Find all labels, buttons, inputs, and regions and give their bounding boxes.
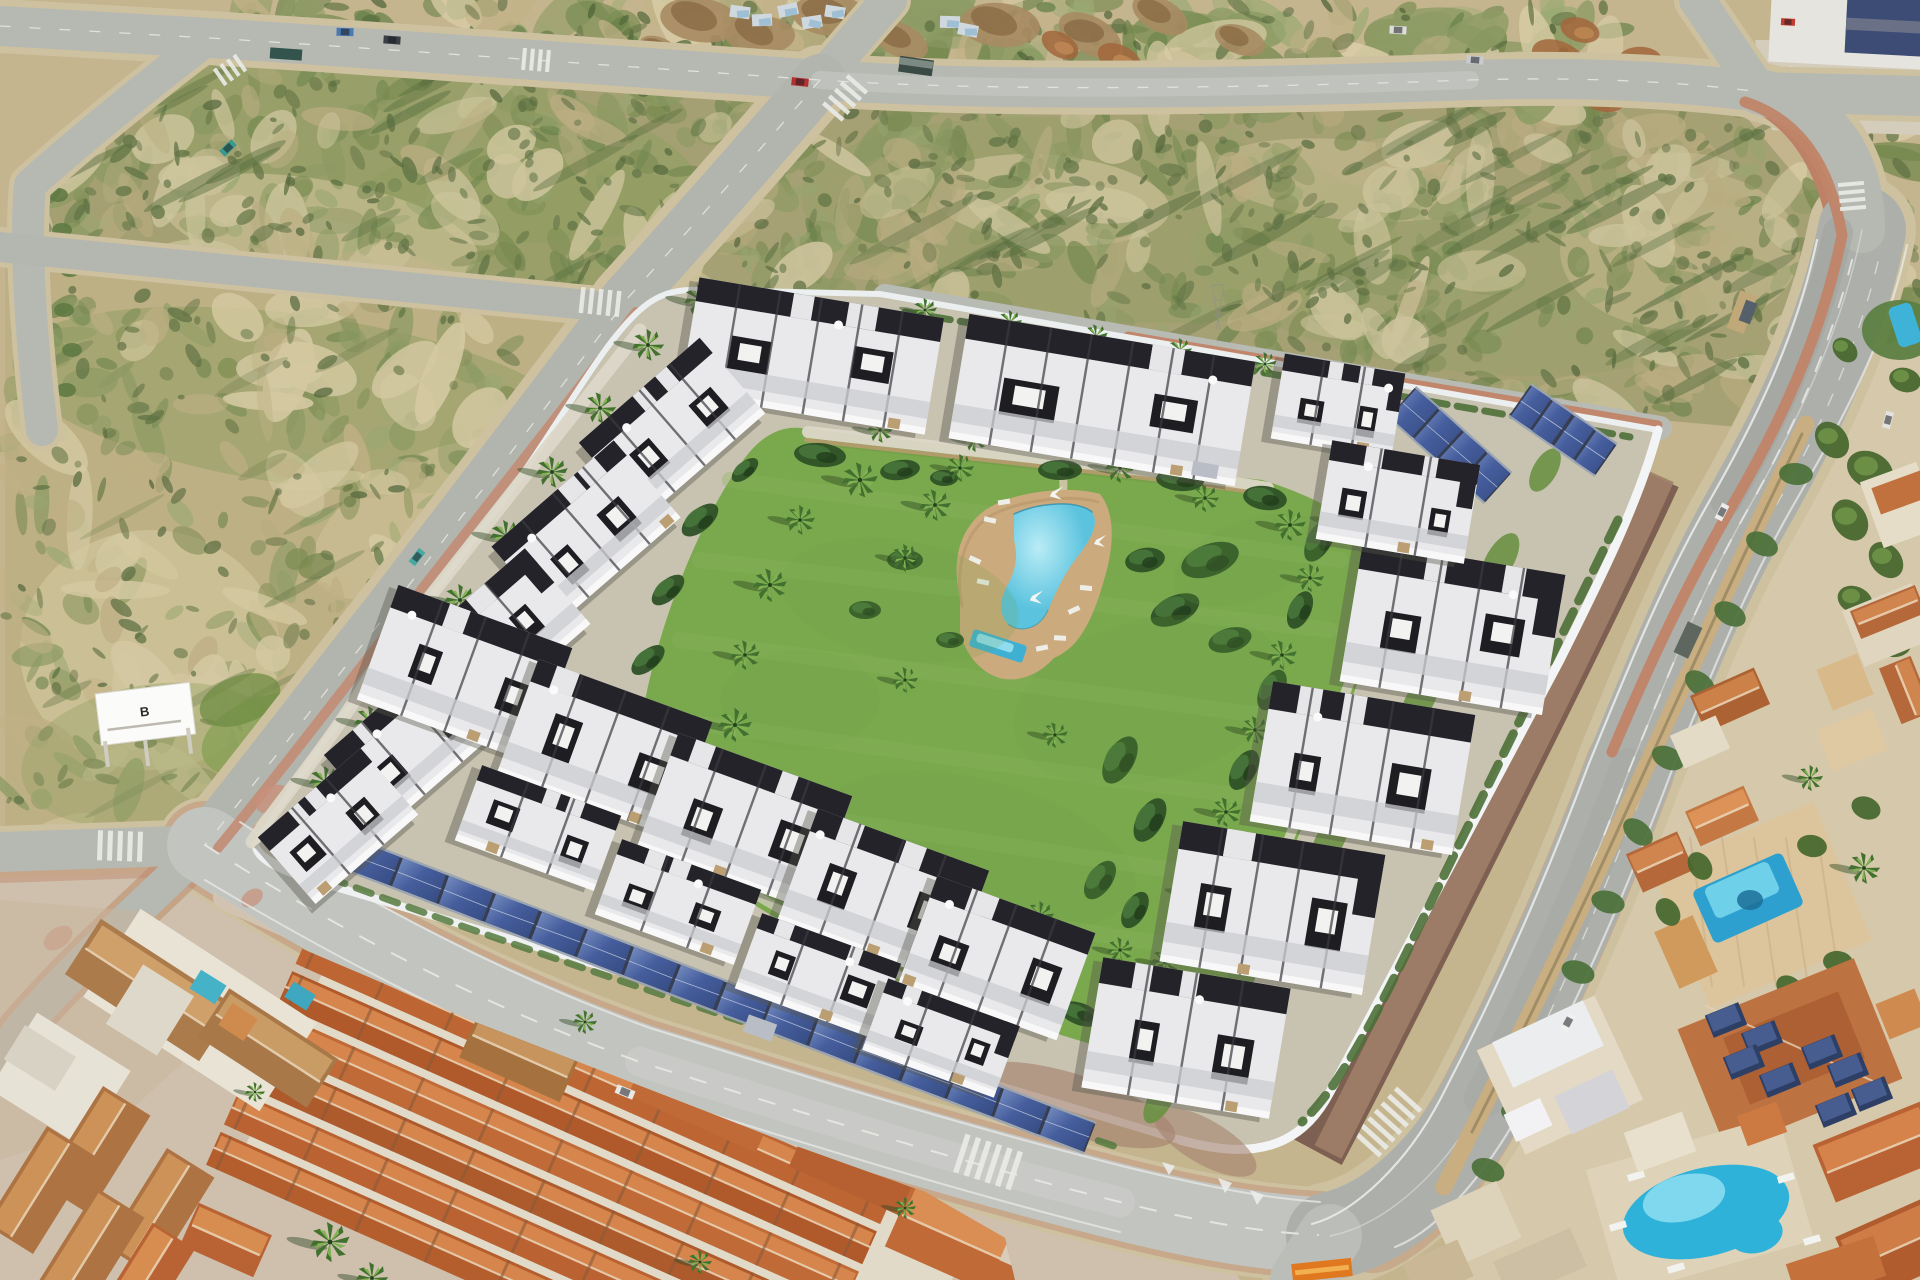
svg-text:B: B [139, 704, 150, 720]
